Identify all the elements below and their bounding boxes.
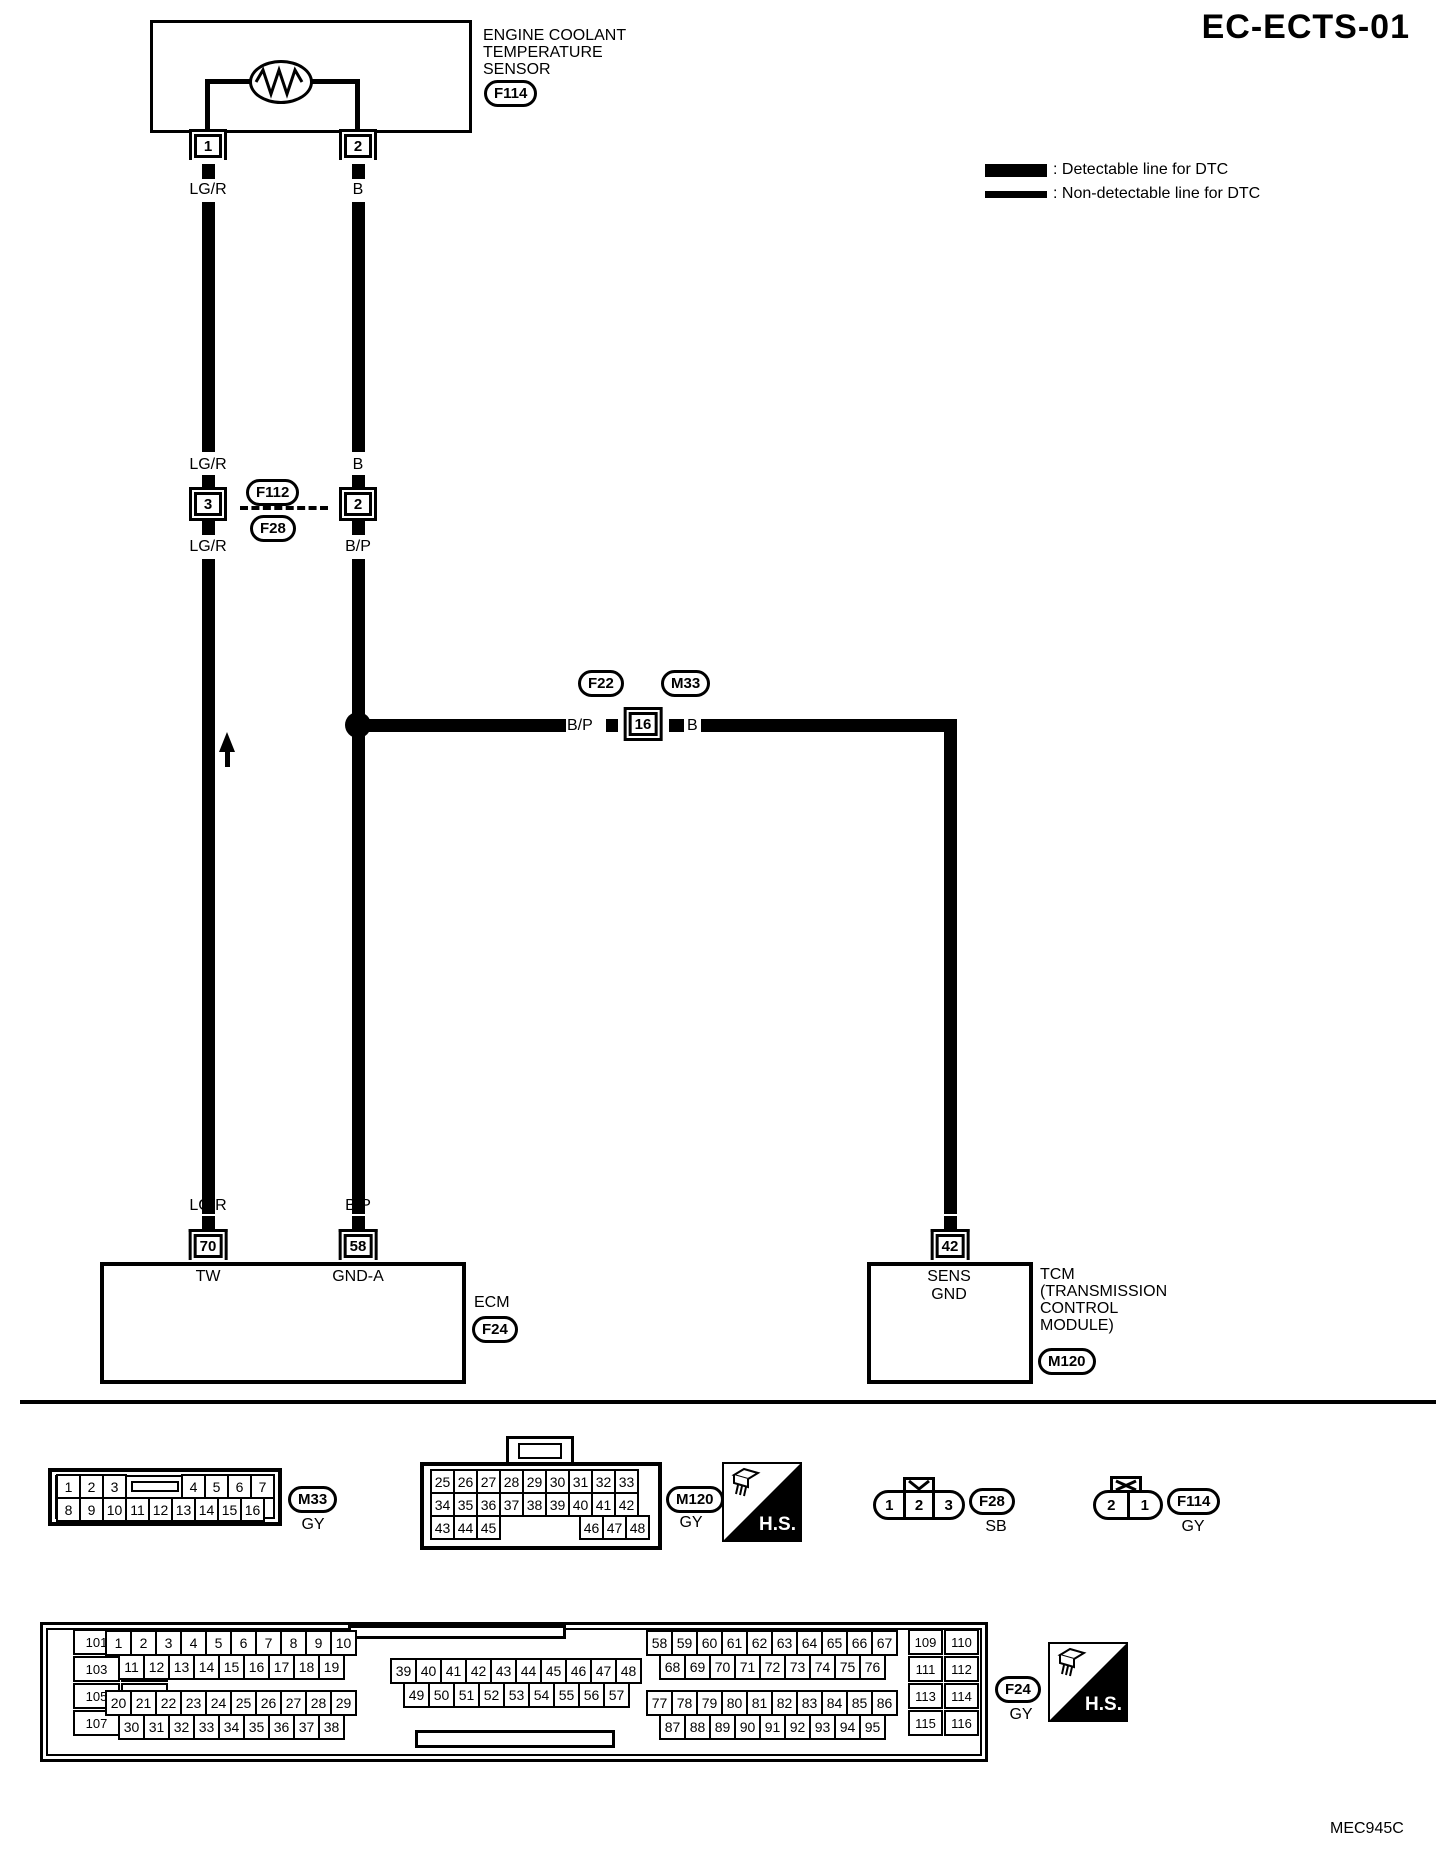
pin-cell-95: 95 <box>859 1714 886 1740</box>
connector-ref-f114: F114 <box>1167 1488 1220 1515</box>
pin-cell-86: 86 <box>871 1690 898 1716</box>
pin-cell-69: 69 <box>684 1654 711 1680</box>
inline-terminal-2: 2 <box>339 487 377 521</box>
terminal-number: 70 <box>194 1234 223 1258</box>
pin-cell-7: 7 <box>255 1630 282 1656</box>
wire-bp-lower <box>352 559 365 1214</box>
wire-stub <box>606 719 618 732</box>
pin-cell-11: 11 <box>118 1654 145 1680</box>
thermistor-resistor-icon <box>249 60 313 104</box>
pin-cell-44: 44 <box>515 1658 542 1684</box>
pin-cell-34: 34 <box>430 1492 455 1517</box>
pin-cell-93: 93 <box>809 1714 836 1740</box>
pin-cell-64: 64 <box>796 1630 823 1656</box>
connector-color-gy: GY <box>1181 1518 1204 1535</box>
pin-cell-31: 31 <box>568 1469 593 1494</box>
pin-cell-43: 43 <box>490 1658 517 1684</box>
connector-color-gy: GY <box>679 1514 702 1531</box>
pin-cell-45: 45 <box>540 1658 567 1684</box>
pin-cell-2: 2 <box>130 1630 157 1656</box>
pin-cell-42: 42 <box>614 1492 639 1517</box>
pin-cell-41: 41 <box>440 1658 467 1684</box>
f24-pin-row: 303132333435363738 <box>118 1714 343 1740</box>
pin-cell-50: 50 <box>428 1682 455 1708</box>
sensor-internal-wire <box>355 79 360 133</box>
wire-stub <box>352 521 365 535</box>
sensor-internal-wire <box>205 79 210 133</box>
hs-label: H.S. <box>1085 1694 1122 1716</box>
pin-cell-28: 28 <box>499 1469 524 1494</box>
terminal-number: 3 <box>194 492 222 516</box>
pin-cell-38: 38 <box>318 1714 345 1740</box>
terminal-number: 16 <box>629 712 658 736</box>
hs-label: H.S. <box>759 1514 796 1536</box>
pin-cell-24: 24 <box>205 1690 232 1716</box>
pin-cell-58: 58 <box>646 1630 673 1656</box>
pin-cell-37: 37 <box>499 1492 524 1517</box>
pin-cell-40: 40 <box>568 1492 593 1517</box>
pin-cell-36: 36 <box>476 1492 501 1517</box>
wire-label-bp: B/P <box>345 538 371 555</box>
inline-terminal-3: 3 <box>189 487 227 521</box>
pin-cell-68: 68 <box>659 1654 686 1680</box>
connector-color-gy: GY <box>301 1516 324 1533</box>
pin-cell-4: 4 <box>181 1474 206 1499</box>
pin-cell-6: 6 <box>227 1474 252 1499</box>
terminal-number: 58 <box>344 1234 373 1258</box>
f24-pin-row: 20212223242526272829 <box>105 1690 355 1716</box>
pin-cell-89: 89 <box>709 1714 736 1740</box>
pin-cell-26: 26 <box>453 1469 478 1494</box>
connector-ref-f22: F22 <box>578 670 624 697</box>
pin-cell-39: 39 <box>390 1658 417 1684</box>
pin-cell-7: 7 <box>250 1474 275 1499</box>
f24-bottom-slot <box>415 1730 615 1748</box>
pin-cell-12: 12 <box>148 1497 173 1522</box>
pin-cell-2: 2 <box>79 1474 104 1499</box>
pin-cell-113: 113 <box>908 1683 943 1709</box>
terminal-number: 1 <box>194 134 222 158</box>
pin-cell-47: 47 <box>590 1658 617 1684</box>
sensor-name-line2: TEMPERATURE <box>483 44 603 61</box>
connector-ref-f24: F24 <box>472 1316 518 1343</box>
pin-cell-26: 26 <box>255 1690 282 1716</box>
pin-cell-115: 115 <box>908 1710 943 1736</box>
connector-ref-f114: F114 <box>484 80 537 107</box>
pin-cell-28: 28 <box>305 1690 332 1716</box>
m120-top-tab-slot <box>518 1443 562 1459</box>
hs-connector-glyph-icon <box>1053 1646 1091 1680</box>
pin-cell-20: 20 <box>105 1690 132 1716</box>
pin-cell-70: 70 <box>709 1654 736 1680</box>
sensor-internal-wire <box>309 79 360 84</box>
m33-keyway-slot <box>131 1481 179 1492</box>
connector-view-f28: 123 <box>873 1490 965 1520</box>
pin-cell-116: 116 <box>944 1710 979 1736</box>
wire-branch-left <box>358 719 566 732</box>
connector-color-sb: SB <box>985 1518 1006 1535</box>
connector-ref-m33: M33 <box>661 670 710 697</box>
tcm-label-line4: MODULE) <box>1040 1317 1114 1334</box>
figure-code: MEC945C <box>1330 1820 1404 1837</box>
pin-cell-103: 103 <box>73 1656 120 1682</box>
f24-pin-row: 58596061626364656667 <box>646 1630 896 1656</box>
legend-non-detectable-line-icon <box>985 191 1047 198</box>
pin-cell-10: 10 <box>102 1497 127 1522</box>
tcm-pin-name-gnd: GND <box>931 1286 967 1303</box>
m33-pin-row: 8910111213141516 <box>56 1497 263 1522</box>
pin-cell-30: 30 <box>545 1469 570 1494</box>
pin-cell-74: 74 <box>809 1654 836 1680</box>
pin-cell-65: 65 <box>821 1630 848 1656</box>
pin-cell-55: 55 <box>553 1682 580 1708</box>
pin-cell-8: 8 <box>280 1630 307 1656</box>
pin-cell-53: 53 <box>503 1682 530 1708</box>
pin-cell-75: 75 <box>834 1654 861 1680</box>
f24-right-pin-block: 109110111112113114115116 <box>908 1629 979 1736</box>
wiring-diagram-page: EC-ECTS-01 : Detectable line for DTC : N… <box>0 0 1456 1860</box>
m120-pin-row: 252627282930313233 <box>430 1469 637 1494</box>
pin-cell-73: 73 <box>784 1654 811 1680</box>
sensor-terminal-1: 1 <box>189 129 227 160</box>
tcm-label-line2: (TRANSMISSION <box>1040 1283 1167 1300</box>
pin-cell-84: 84 <box>821 1690 848 1716</box>
pin-cell-63: 63 <box>771 1630 798 1656</box>
pin-cell-27: 27 <box>476 1469 501 1494</box>
pin-cell-29: 29 <box>522 1469 547 1494</box>
pin-cell-14: 14 <box>194 1497 219 1522</box>
pin-cell-17: 17 <box>268 1654 295 1680</box>
wire-label-bp: B/P <box>567 717 593 734</box>
wire-stub <box>202 164 215 179</box>
pin-cell-112: 112 <box>944 1656 979 1682</box>
wire-b-upper <box>352 202 365 452</box>
pin-cell-71: 71 <box>734 1654 761 1680</box>
pin-cell-16: 16 <box>243 1654 270 1680</box>
inline-terminal-16: 16 <box>624 707 663 741</box>
wire-b-to-tcm <box>944 719 957 1214</box>
wire-branch-right <box>701 719 957 732</box>
tcm-label-line3: CONTROL <box>1040 1300 1118 1317</box>
pin-cell-110: 110 <box>944 1629 979 1655</box>
pin-cell-35: 35 <box>243 1714 270 1740</box>
pin-cell-41: 41 <box>591 1492 616 1517</box>
pin-cell-14: 14 <box>193 1654 220 1680</box>
pin-cell-46: 46 <box>565 1658 592 1684</box>
pin-cell-43: 43 <box>430 1515 455 1540</box>
pin-cell-77: 77 <box>646 1690 673 1716</box>
f24-pin-row: 111213141516171819 <box>118 1654 343 1680</box>
connector-ref-m33: M33 <box>288 1486 337 1513</box>
connector-ref-m120: M120 <box>666 1486 724 1513</box>
ecm-pin-name-tw: TW <box>196 1268 221 1285</box>
wire-label-b: B <box>945 1197 956 1214</box>
inline-connector-dashed-link <box>240 506 328 510</box>
pin-cell-51: 51 <box>453 1682 480 1708</box>
pin-cell-11: 11 <box>125 1497 150 1522</box>
pin-cell-37: 37 <box>293 1714 320 1740</box>
pin-cell-90: 90 <box>734 1714 761 1740</box>
pin-cell-2: 2 <box>1096 1493 1130 1517</box>
pin-cell-1: 1 <box>56 1474 81 1499</box>
f24-top-slot <box>348 1625 566 1639</box>
pin-cell-57: 57 <box>603 1682 630 1708</box>
pin-cell-79: 79 <box>696 1690 723 1716</box>
pin-cell-25: 25 <box>430 1469 455 1494</box>
sensor-name-line3: SENSOR <box>483 61 551 78</box>
pin-cell-109: 109 <box>908 1629 943 1655</box>
page-title: EC-ECTS-01 <box>1150 8 1410 47</box>
wire-label-lgr: LG/R <box>189 181 226 198</box>
connector-ref-f112: F112 <box>246 479 299 506</box>
pin-cell-21: 21 <box>130 1690 157 1716</box>
pin-cell-35: 35 <box>453 1492 478 1517</box>
pin-cell-5: 5 <box>204 1474 229 1499</box>
pin-cell-18: 18 <box>293 1654 320 1680</box>
m120-pin-row: 464748 <box>579 1515 648 1540</box>
m33-pin-row: 123 <box>56 1474 125 1499</box>
pin-cell-52: 52 <box>478 1682 505 1708</box>
pin-cell-25: 25 <box>230 1690 257 1716</box>
pin-cell-94: 94 <box>834 1714 861 1740</box>
pin-cell-44: 44 <box>453 1515 478 1540</box>
f24-pin-row: 12345678910 <box>105 1630 355 1656</box>
legend-non-detectable-label: : Non-detectable line for DTC <box>1053 185 1260 202</box>
f24-pin-row: 39404142434445464748 <box>390 1658 640 1684</box>
wire-stub <box>352 164 365 179</box>
pin-cell-48: 48 <box>625 1515 650 1540</box>
pin-cell-10: 10 <box>330 1630 357 1656</box>
wire-label-b: B <box>687 717 698 734</box>
pin-cell-78: 78 <box>671 1690 698 1716</box>
pin-cell-39: 39 <box>545 1492 570 1517</box>
wire-label-b: B <box>353 456 364 473</box>
pin-cell-81: 81 <box>746 1690 773 1716</box>
sensor-internal-wire <box>205 79 253 84</box>
pin-cell-61: 61 <box>721 1630 748 1656</box>
connector-ref-f24: F24 <box>995 1676 1041 1703</box>
pin-cell-56: 56 <box>578 1682 605 1708</box>
pin-cell-33: 33 <box>614 1469 639 1494</box>
pin-cell-12: 12 <box>143 1654 170 1680</box>
pin-cell-80: 80 <box>721 1690 748 1716</box>
legend-detectable-line-icon <box>985 164 1047 177</box>
pin-cell-32: 32 <box>168 1714 195 1740</box>
f24-pin-row: 77787980818283848586 <box>646 1690 896 1716</box>
m120-pin-row: 343536373839404142 <box>430 1492 637 1517</box>
pin-cell-47: 47 <box>602 1515 627 1540</box>
pin-cell-34: 34 <box>218 1714 245 1740</box>
connector-ref-m120: M120 <box>1038 1348 1096 1375</box>
pin-cell-1: 1 <box>1130 1493 1161 1517</box>
connector-ref-f28: F28 <box>250 515 296 542</box>
pin-cell-36: 36 <box>268 1714 295 1740</box>
pin-cell-19: 19 <box>318 1654 345 1680</box>
pin-cell-82: 82 <box>771 1690 798 1716</box>
pin-cell-23: 23 <box>180 1690 207 1716</box>
pin-cell-72: 72 <box>759 1654 786 1680</box>
pin-cell-15: 15 <box>217 1497 242 1522</box>
pin-cell-16: 16 <box>240 1497 265 1522</box>
pin-cell-33: 33 <box>193 1714 220 1740</box>
terminal-number: 42 <box>936 1234 965 1258</box>
pin-cell-114: 114 <box>944 1683 979 1709</box>
m33-pin-row: 4567 <box>181 1474 273 1499</box>
connector-color-gy: GY <box>1009 1706 1032 1723</box>
pin-cell-9: 9 <box>79 1497 104 1522</box>
pin-cell-27: 27 <box>280 1690 307 1716</box>
pin-cell-83: 83 <box>796 1690 823 1716</box>
pin-cell-67: 67 <box>871 1630 898 1656</box>
pin-cell-5: 5 <box>205 1630 232 1656</box>
legend-detectable-label: : Detectable line for DTC <box>1053 161 1228 178</box>
pin-cell-32: 32 <box>591 1469 616 1494</box>
pin-cell-62: 62 <box>746 1630 773 1656</box>
pin-cell-40: 40 <box>415 1658 442 1684</box>
pin-cell-91: 91 <box>759 1714 786 1740</box>
pin-cell-66: 66 <box>846 1630 873 1656</box>
pin-cell-22: 22 <box>155 1690 182 1716</box>
tcm-pin-name-sens: SENS <box>927 1268 971 1285</box>
ecm-label: ECM <box>474 1294 510 1311</box>
tcm-label-line1: TCM <box>1040 1266 1075 1283</box>
wire-lgr-upper <box>202 202 215 452</box>
wire-stub <box>669 719 684 732</box>
wire-stub <box>202 521 215 535</box>
terminal-number: 2 <box>344 492 372 516</box>
pin-cell-49: 49 <box>403 1682 430 1708</box>
pin-cell-4: 4 <box>180 1630 207 1656</box>
tcm-terminal-42: 42 <box>931 1229 970 1260</box>
pin-cell-15: 15 <box>218 1654 245 1680</box>
f24-pin-row: 878889909192939495 <box>659 1714 884 1740</box>
pin-cell-92: 92 <box>784 1714 811 1740</box>
pin-cell-76: 76 <box>859 1654 886 1680</box>
sensor-terminal-2: 2 <box>339 129 377 160</box>
wire-label-b: B <box>353 181 364 198</box>
ecm-box <box>100 1262 466 1384</box>
pin-cell-13: 13 <box>171 1497 196 1522</box>
pin-cell-3: 3 <box>155 1630 182 1656</box>
hs-connector-glyph-icon <box>727 1466 765 1500</box>
pin-cell-6: 6 <box>230 1630 257 1656</box>
f24-pin-row: 495051525354555657 <box>403 1682 628 1708</box>
pin-cell-88: 88 <box>684 1714 711 1740</box>
pin-cell-59: 59 <box>671 1630 698 1656</box>
pin-cell-1: 1 <box>105 1630 132 1656</box>
hs-harness-side-icon: H.S. <box>722 1462 802 1542</box>
pin-cell-9: 9 <box>305 1630 332 1656</box>
ecm-pin-name-gnd-a: GND-A <box>332 1268 384 1285</box>
pin-cell-30: 30 <box>118 1714 145 1740</box>
pin-cell-1: 1 <box>876 1493 906 1517</box>
pin-cell-85: 85 <box>846 1690 873 1716</box>
section-divider <box>20 1400 1436 1404</box>
f24-pin-row: 686970717273747576 <box>659 1654 884 1680</box>
pin-cell-31: 31 <box>143 1714 170 1740</box>
wire-label-lgr: LG/R <box>189 538 226 555</box>
wire-direction-arrow-icon <box>225 751 230 767</box>
connector-view-f114: 21 <box>1093 1490 1163 1520</box>
ecm-terminal-70: 70 <box>189 1229 228 1260</box>
wire-label-lgr: LG/R <box>189 1197 226 1214</box>
pin-cell-111: 111 <box>908 1656 943 1682</box>
pin-cell-3: 3 <box>102 1474 127 1499</box>
pin-cell-2: 2 <box>906 1493 936 1517</box>
pin-cell-87: 87 <box>659 1714 686 1740</box>
wire-label-bp: B/P <box>345 1197 371 1214</box>
terminal-number: 2 <box>344 134 372 158</box>
connector-ref-f28: F28 <box>969 1488 1015 1515</box>
hs-harness-side-icon: H.S. <box>1048 1642 1128 1722</box>
wire-label-lgr: LG/R <box>189 456 226 473</box>
m120-pin-row: 434445 <box>430 1515 499 1540</box>
pin-cell-46: 46 <box>579 1515 604 1540</box>
wire-lgr-lower <box>202 559 215 1214</box>
pin-cell-13: 13 <box>168 1654 195 1680</box>
pin-cell-60: 60 <box>696 1630 723 1656</box>
pin-cell-29: 29 <box>330 1690 357 1716</box>
pin-cell-8: 8 <box>56 1497 81 1522</box>
pin-cell-54: 54 <box>528 1682 555 1708</box>
ecm-terminal-58: 58 <box>339 1229 378 1260</box>
sensor-name-line1: ENGINE COOLANT <box>483 27 626 44</box>
pin-cell-48: 48 <box>615 1658 642 1684</box>
pin-cell-3: 3 <box>935 1493 962 1517</box>
pin-cell-42: 42 <box>465 1658 492 1684</box>
pin-cell-45: 45 <box>476 1515 501 1540</box>
wire-direction-arrow-icon <box>219 732 235 752</box>
pin-cell-38: 38 <box>522 1492 547 1517</box>
